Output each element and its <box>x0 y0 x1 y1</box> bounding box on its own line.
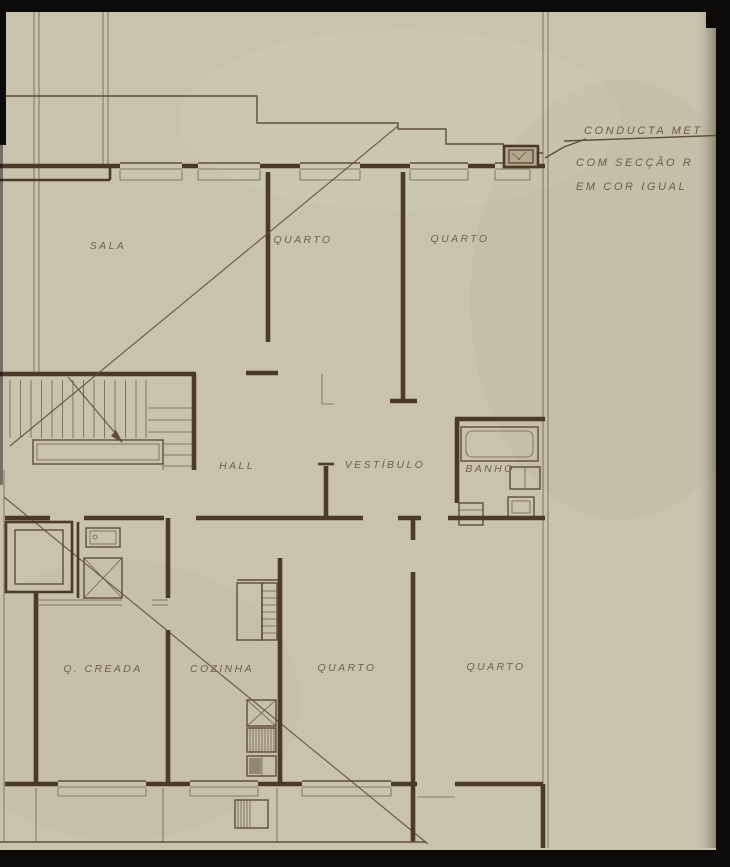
paper-texture <box>0 12 730 848</box>
toilet-fixture <box>508 497 534 517</box>
annotation-text: CONDUCTA MET COM SECÇÃO R EM COR IGUAL <box>576 125 703 193</box>
duct-box <box>504 146 538 167</box>
scanned-floor-plan: CONDUCTA MET COM SECÇÃO R EM COR IGUAL S… <box>0 0 730 867</box>
scan-border-top <box>0 0 730 12</box>
diagonal-line-upper <box>10 126 398 446</box>
room-label-quarto-creada: Q. CREADA <box>63 663 142 675</box>
room-label-quarto-top-right: QUARTO <box>431 233 490 245</box>
scan-border-right <box>716 0 730 867</box>
scan-border-bottom <box>0 850 730 867</box>
scan-border-left-fade <box>0 145 3 485</box>
floor-plan-svg: CONDUCTA MET COM SECÇÃO R EM COR IGUAL S… <box>0 0 730 867</box>
room-label-quarto-top-left: QUARTO <box>274 234 333 246</box>
annotation-line-3: EM COR IGUAL <box>576 181 687 193</box>
annotation-line-2: COM SECÇÃO R <box>576 156 693 169</box>
expansion-joint-line <box>103 12 108 164</box>
room-label-cozinha: COZINHA <box>190 663 254 675</box>
bidet-fixture <box>459 503 483 525</box>
service-tub-fixture <box>86 528 120 547</box>
room-label-quarto-bottom-right: QUARTO <box>467 661 526 673</box>
room-label-banho: BANHO <box>465 463 514 475</box>
stair-landing <box>33 440 163 464</box>
staircase <box>10 380 194 470</box>
room-label-quarto-bottom-left: QUARTO <box>318 662 377 674</box>
room-label-sala: SALA <box>90 240 126 252</box>
annotation-line-1: CONDUCTA MET <box>584 125 703 137</box>
room-label-hall: HALL <box>219 460 255 472</box>
room-label-vestibulo: VESTÍBULO <box>345 458 426 471</box>
party-wall-left <box>34 12 39 372</box>
scan-border-right-top <box>706 0 730 28</box>
scan-border-left <box>0 0 6 145</box>
stair-winders <box>148 408 194 470</box>
